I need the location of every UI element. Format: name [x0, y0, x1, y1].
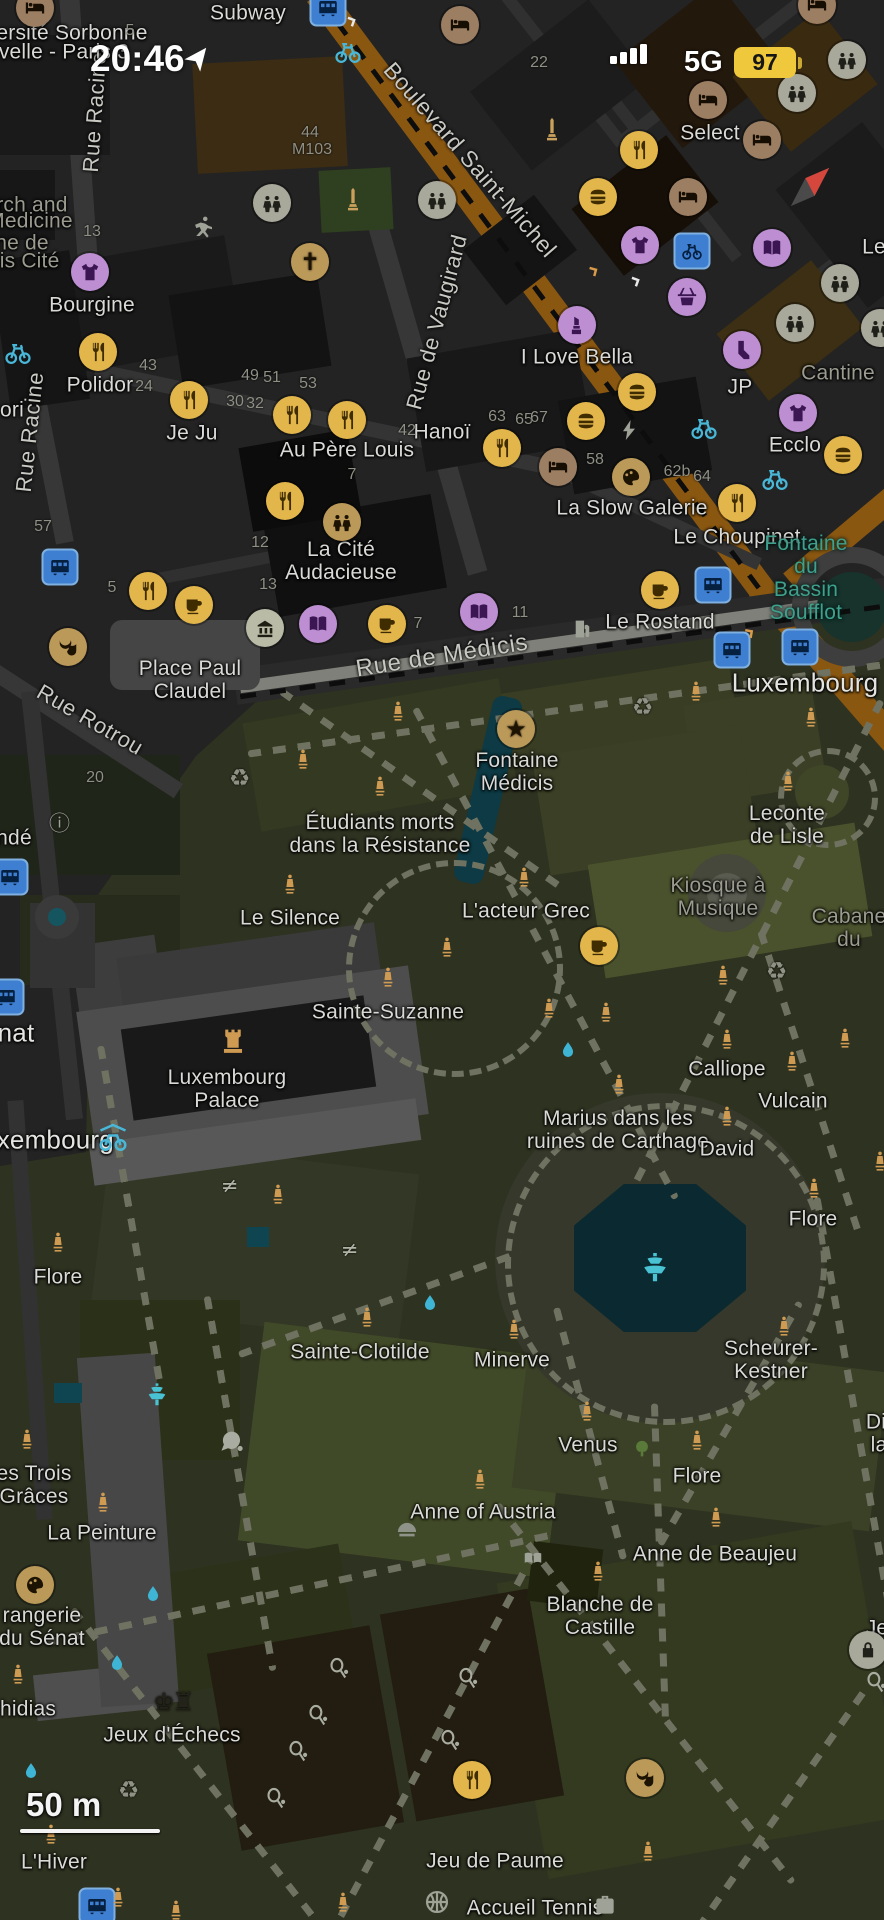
water-drop-icon — [144, 1585, 163, 1604]
map-label[interactable]: la — [871, 1433, 884, 1456]
map-label[interactable]: Je Ju — [166, 421, 217, 444]
playground-icon[interactable] — [828, 41, 866, 79]
map-label[interactable]: Accueil Tennis — [467, 1896, 604, 1919]
statue-icon[interactable] — [278, 873, 302, 897]
map-label[interactable]: Scheurer-Kestner — [715, 1337, 828, 1383]
fastfood-icon[interactable] — [618, 373, 656, 411]
bus-stop-icon[interactable] — [42, 549, 79, 586]
bike-rental-icon[interactable] — [674, 233, 711, 270]
ev-charger-icon — [571, 617, 596, 642]
map-screen[interactable]: Boulevard Saint-MichelRue RacineRue Raci… — [0, 0, 884, 1920]
bus-stop-icon[interactable] — [0, 979, 25, 1016]
power-icon — [617, 418, 641, 442]
community-icon[interactable] — [323, 503, 361, 541]
house-number: 24 — [135, 378, 153, 396]
restaurant-icon[interactable] — [266, 482, 304, 520]
playground-icon[interactable] — [861, 309, 884, 347]
map-shape — [48, 908, 66, 926]
map-label[interactable]: Flore — [673, 1464, 722, 1487]
clothes-icon[interactable] — [71, 253, 109, 291]
hotel-icon[interactable] — [689, 81, 727, 119]
house-number: 51 — [263, 369, 281, 387]
house-number: 13 — [83, 223, 101, 241]
statue-icon[interactable] — [355, 1306, 379, 1330]
house-number: 64 — [693, 468, 711, 486]
map-label[interactable]: es Trois Grâces — [0, 1462, 72, 1508]
tennis-racket-icon — [456, 1668, 481, 1693]
gate-icon: ≠ — [218, 1176, 239, 1197]
attraction-star-icon[interactable]: ★ — [497, 710, 535, 748]
map-label[interactable]: La Slow Galerie — [556, 496, 707, 519]
statue-icon[interactable] — [607, 1073, 631, 1097]
statue-icon[interactable] — [715, 1028, 739, 1052]
books-icon[interactable] — [299, 605, 337, 643]
statue-icon[interactable] — [715, 1105, 739, 1129]
house-number: 32 — [246, 395, 264, 413]
shoes-icon[interactable] — [723, 331, 761, 369]
house-number: 58 — [586, 451, 604, 469]
house-number: 49 — [241, 367, 259, 385]
map-label: ris Cité — [0, 249, 59, 272]
location-arrow-icon — [186, 44, 212, 70]
hotel-icon[interactable] — [669, 178, 707, 216]
map-label[interactable]: L'Hiver — [21, 1850, 87, 1873]
statue-icon[interactable] — [684, 680, 708, 704]
statue-icon[interactable] — [636, 1840, 660, 1864]
map-label[interactable]: Subway — [210, 1, 286, 24]
fastfood-icon[interactable] — [567, 402, 605, 440]
restaurant-icon[interactable] — [129, 572, 167, 610]
map-label[interactable]: Di — [866, 1410, 884, 1433]
recycling-icon: ♻ — [226, 766, 250, 790]
map-label[interactable]: ndé — [0, 826, 32, 849]
castle-icon — [218, 1025, 249, 1056]
bus-stop-icon[interactable] — [695, 567, 732, 604]
hotel-icon[interactable] — [441, 6, 479, 44]
tennis-racket-icon — [864, 1672, 884, 1697]
map-label[interactable]: I Love Bella — [521, 345, 633, 368]
recycling-icon: ♻ — [629, 695, 653, 719]
map-label[interactable]: Venus — [558, 1433, 617, 1456]
bus-stop-icon[interactable] — [0, 859, 29, 896]
fastfood-icon[interactable] — [824, 436, 862, 474]
water-drop-icon — [421, 1294, 440, 1313]
house-number: 12 — [251, 534, 269, 552]
map-label[interactable]: JP — [728, 375, 753, 398]
map-label[interactable]: David — [700, 1137, 755, 1160]
statue-icon[interactable] — [435, 936, 459, 960]
map-label: Cabane du — [812, 905, 884, 951]
map-label: Medicine — [0, 209, 73, 232]
basketball-icon — [424, 1889, 450, 1915]
map-shape — [54, 1383, 82, 1403]
statue-icon[interactable] — [512, 866, 536, 890]
scale-bar-line — [20, 1829, 160, 1833]
statue-icon[interactable] — [386, 700, 410, 724]
statue-icon[interactable] — [575, 1400, 599, 1424]
map-label[interactable]: Jeu de Paume — [426, 1849, 564, 1872]
map-label[interactable]: Luxembourg Palace — [168, 1066, 287, 1112]
statue-icon[interactable] — [502, 1318, 526, 1342]
statue-icon[interactable] — [685, 1429, 709, 1453]
map-label[interactable]: uxembourg — [0, 1126, 114, 1155]
hotel-icon[interactable] — [743, 121, 781, 159]
scale-bar-label: 50 m — [26, 1786, 101, 1824]
house-number: M103 — [292, 141, 332, 159]
tennis-racket-icon — [306, 1705, 331, 1730]
bicycle-icon — [691, 415, 718, 442]
clothes-icon[interactable] — [779, 394, 817, 432]
fastfood-icon[interactable] — [579, 178, 617, 216]
statue-icon[interactable] — [868, 1150, 884, 1174]
recycling-icon: ♻ — [115, 1778, 139, 1802]
map-label[interactable]: Le Silence — [240, 906, 340, 929]
bicycle-icon — [5, 340, 32, 367]
playground-icon[interactable] — [821, 264, 859, 302]
street-label: Rue Rotrou — [32, 679, 148, 761]
statue-icon[interactable] — [772, 1315, 796, 1339]
house-number: 11 — [512, 604, 529, 622]
map-label[interactable]: Blanche de Castille — [546, 1593, 653, 1639]
map-label[interactable]: nat — [0, 1019, 34, 1048]
map-label[interactable]: Select — [680, 121, 740, 144]
bench-book-icon — [522, 1547, 544, 1569]
map-label[interactable]: Au Père Louis — [280, 438, 415, 461]
map-label[interactable]: Le — [862, 235, 884, 258]
recycling-icon: ♻ — [763, 959, 787, 983]
map-label[interactable]: Anne of Austria — [410, 1500, 555, 1523]
cafe-icon[interactable] — [641, 571, 679, 609]
books-icon[interactable] — [753, 229, 791, 267]
statue-icon[interactable] — [6, 1663, 30, 1687]
info-icon: ⓘ — [48, 814, 69, 835]
playground-icon[interactable] — [253, 184, 291, 222]
statue-icon[interactable] — [39, 1823, 63, 1847]
house-number: 42 — [398, 422, 416, 440]
gallery-icon[interactable] — [612, 458, 650, 496]
runner-icon — [190, 214, 217, 241]
statue-icon[interactable] — [537, 997, 561, 1021]
map-label[interactable]: Flore — [789, 1207, 838, 1230]
map-label[interactable]: Anne de Beaujeu — [633, 1542, 797, 1565]
house-number: 7 — [348, 466, 357, 484]
cafe-icon[interactable] — [580, 927, 618, 965]
gallery-icon[interactable] — [16, 1566, 54, 1604]
clothes-icon[interactable] — [621, 226, 659, 264]
statue-icon[interactable] — [15, 1428, 39, 1452]
chess-icon: ♚♜ — [160, 1690, 185, 1715]
dome-icon — [394, 1519, 420, 1545]
fountain-icon — [637, 1250, 673, 1286]
map-label[interactable]: La Peinture — [47, 1521, 157, 1544]
house-number: 44 — [301, 124, 319, 142]
tree-icon — [631, 1439, 653, 1461]
restaurant-icon[interactable] — [79, 333, 117, 371]
compass-icon[interactable] — [787, 164, 833, 210]
map-label[interactable]: Vulcain — [758, 1089, 828, 1112]
water-drop-icon — [559, 1041, 578, 1060]
theatre-icon[interactable] — [626, 1759, 664, 1797]
statue-icon[interactable] — [291, 748, 315, 772]
map-label[interactable]: rangerie du Sénat — [0, 1604, 85, 1650]
map-label[interactable]: Leconte de Lisle — [749, 802, 825, 848]
house-number: 53 — [299, 375, 317, 393]
house-number: 20 — [86, 769, 104, 787]
map-label[interactable]: Jeux d'Échecs — [103, 1723, 240, 1746]
statue-icon[interactable] — [46, 1231, 70, 1255]
books-icon[interactable] — [460, 593, 498, 631]
luggage-icon — [592, 1892, 618, 1918]
statue-icon[interactable] — [164, 1899, 188, 1920]
map-label[interactable]: Le Rostand — [605, 610, 714, 633]
table-tennis-icon — [219, 1429, 246, 1456]
house-number: 7 — [414, 615, 423, 633]
statue-icon[interactable] — [368, 775, 392, 799]
map-label[interactable]: Luxembourg — [732, 669, 879, 698]
statue-icon[interactable] — [586, 1560, 610, 1584]
statue-icon[interactable] — [833, 1027, 857, 1051]
restaurant-icon[interactable] — [273, 396, 311, 434]
network-type: 5G — [684, 46, 723, 79]
gate-icon: ≠ — [338, 1240, 359, 1261]
fountain-icon — [143, 1381, 171, 1409]
map-label[interactable]: Flore — [34, 1265, 83, 1288]
battery-nub — [798, 57, 802, 69]
restaurant-icon[interactable] — [483, 429, 521, 467]
theatre-icon[interactable] — [49, 628, 87, 666]
church-icon[interactable]: ✝ — [291, 243, 329, 281]
oneway-arrow-icon — [579, 259, 605, 285]
battery-indicator: 97 — [734, 47, 796, 78]
map-label[interactable]: Sainte-Clotilde — [290, 1340, 430, 1363]
statue-icon[interactable] — [594, 1001, 618, 1025]
map-label[interactable]: hidias — [0, 1697, 56, 1720]
statue-icon[interactable] — [91, 1491, 115, 1515]
cafe-icon[interactable] — [175, 586, 213, 624]
map-label[interactable]: Fontaine du Bassin Soufflot — [764, 532, 847, 624]
water-drop-icon — [22, 1762, 41, 1781]
statue-icon[interactable] — [106, 1886, 130, 1910]
statue-icon[interactable] — [802, 1177, 826, 1201]
statue-icon[interactable] — [711, 964, 735, 988]
map-label[interactable]: Calliope — [688, 1057, 765, 1080]
bicycle-icon — [762, 466, 789, 493]
tennis-racket-icon — [327, 1658, 352, 1683]
restaurant-icon[interactable] — [718, 484, 756, 522]
bank-icon[interactable] — [246, 609, 284, 647]
playground-icon[interactable] — [776, 304, 814, 342]
water-drop-icon — [108, 1654, 127, 1673]
house-number: 57 — [34, 518, 52, 536]
map-label[interactable]: Bourgine — [49, 293, 135, 316]
statue-icon[interactable] — [468, 1468, 492, 1492]
restaurant-icon[interactable] — [620, 131, 658, 169]
map-label[interactable]: L'acteur Grec — [462, 899, 590, 922]
cosmetics-icon[interactable] — [558, 306, 596, 344]
statue-icon[interactable] — [331, 1891, 355, 1915]
house-number: 62b — [664, 463, 691, 481]
map-label[interactable]: La Cité Audacieuse — [285, 538, 397, 584]
map-label[interactable]: Hanoï — [413, 420, 470, 443]
map-label[interactable]: Étudiants morts dans la Résistance — [289, 811, 470, 857]
bicycle-icon — [335, 39, 362, 66]
map-label[interactable]: Sainte-Suzanne — [312, 1000, 464, 1023]
supermarket-icon[interactable] — [668, 278, 706, 316]
cafe-icon[interactable] — [368, 605, 406, 643]
map-label[interactable]: Polidor — [67, 373, 134, 396]
restaurant-icon[interactable] — [328, 401, 366, 439]
statue-icon[interactable] — [799, 706, 823, 730]
house-number: 13 — [259, 576, 277, 594]
restaurant-icon[interactable] — [453, 1761, 491, 1799]
map-label[interactable]: Ecclo — [769, 433, 821, 456]
tennis-racket-icon — [286, 1741, 311, 1766]
house-number: 43 — [139, 357, 157, 375]
monument-icon — [540, 118, 565, 143]
map-label[interactable]: Fontaine Médicis — [475, 749, 558, 795]
house-number: 5 — [108, 579, 117, 597]
statue-icon[interactable] — [704, 1506, 728, 1530]
monument-icon — [341, 188, 366, 213]
house-number: 67 — [530, 409, 548, 427]
map-label[interactable]: ori — [0, 398, 24, 421]
house-number: 63 — [488, 408, 506, 426]
map-label[interactable]: Place Paul Claudel — [139, 657, 241, 703]
statue-icon[interactable] — [376, 966, 400, 990]
status-time: 20:46 — [90, 38, 185, 80]
map-label: Kiosque à Musique — [670, 874, 765, 920]
covered-bicycle-icon — [98, 1123, 128, 1153]
map-label: Cantine — [801, 361, 875, 384]
statue-icon[interactable] — [266, 1183, 290, 1207]
house-number: 22 — [530, 54, 548, 72]
hotel-icon[interactable] — [539, 448, 577, 486]
map-shape — [247, 1227, 269, 1247]
house-number: 30 — [226, 393, 244, 411]
lock-icon[interactable] — [849, 1631, 884, 1669]
playground-icon[interactable] — [778, 74, 816, 112]
signal-bars-icon — [610, 44, 647, 64]
bus-stop-icon[interactable] — [782, 629, 819, 666]
statue-icon[interactable] — [780, 1050, 804, 1074]
map-label[interactable]: Minerve — [474, 1348, 550, 1371]
restaurant-icon[interactable] — [170, 381, 208, 419]
map-label[interactable]: Marius dans les ruines de Carthage — [527, 1107, 709, 1153]
playground-icon[interactable] — [418, 181, 456, 219]
tennis-racket-icon — [264, 1788, 289, 1813]
statue-icon[interactable] — [776, 770, 800, 794]
tennis-racket-icon — [438, 1730, 463, 1755]
